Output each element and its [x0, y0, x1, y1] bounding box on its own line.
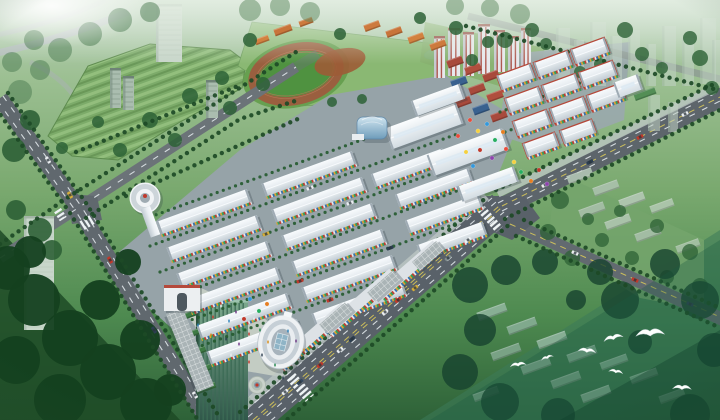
- atmosphere-overlays: [0, 0, 720, 420]
- vignette: [0, 0, 720, 420]
- aerial-rendering: [0, 0, 720, 420]
- masterplan-svg: [0, 0, 720, 420]
